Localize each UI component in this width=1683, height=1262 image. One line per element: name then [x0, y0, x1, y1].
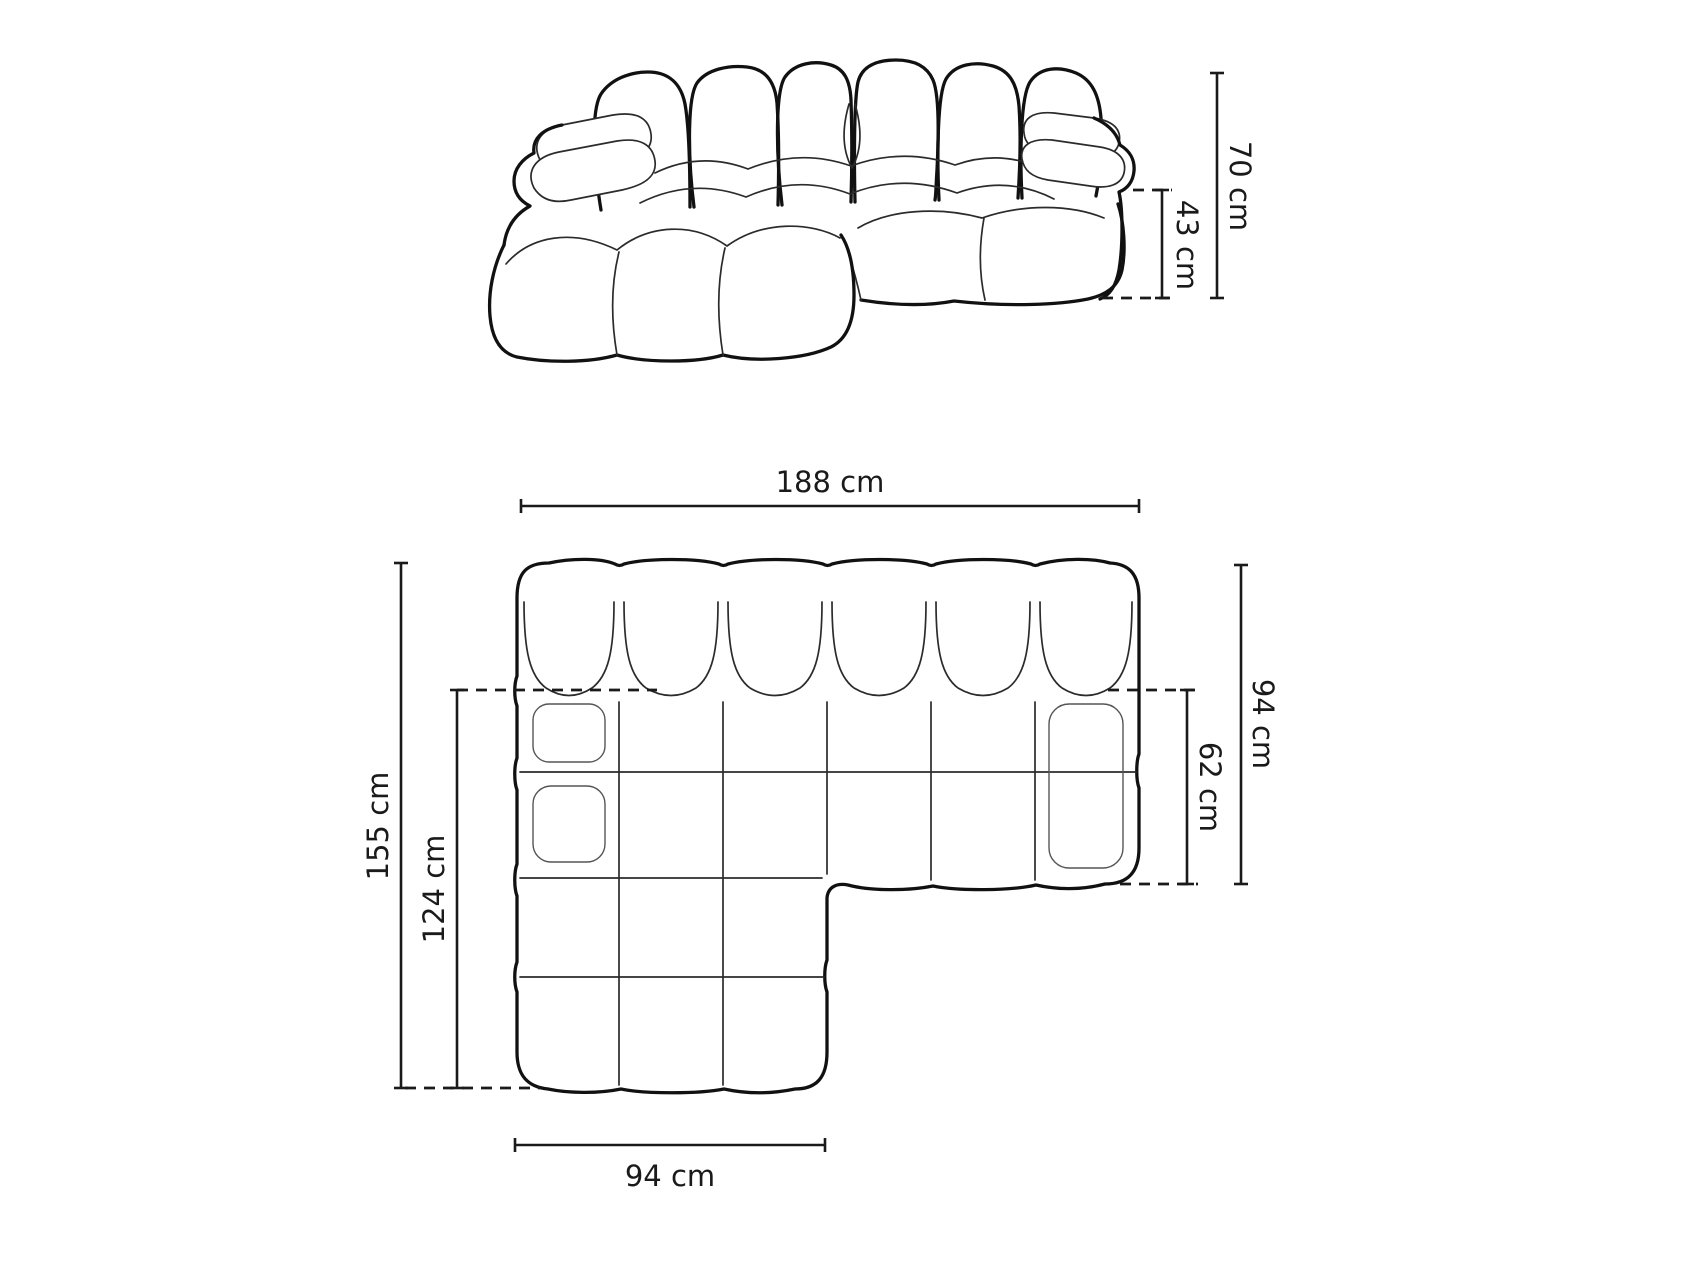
front-dim-label-total-height: 70 cm [1223, 141, 1257, 231]
plan-dim-label-chaise-seat-depth: 124 cm [417, 835, 451, 944]
diagram-svg: 70 cm 43 cm [0, 0, 1683, 1262]
plan-back-cushion-seams [524, 602, 1132, 696]
plan-dim-chaise-width: 94 cm [515, 1138, 825, 1193]
plan-dim-label-total-depth: 94 cm [1246, 679, 1280, 769]
plan-dim-label-seat-depth: 62 cm [1193, 742, 1227, 832]
front-chaise [490, 226, 854, 361]
sofa-dimension-diagram: 70 cm 43 cm [0, 0, 1683, 1262]
plan-dim-total-width: 188 cm [521, 465, 1139, 513]
front-dim-total-height: 70 cm [1210, 73, 1257, 298]
front-right-seat-section [844, 204, 1124, 305]
front-left-armrest [504, 114, 655, 245]
plan-dim-seat-depth: 62 cm [1108, 690, 1227, 884]
plan-dim-total-depth: 94 cm [1234, 565, 1280, 884]
front-dim-label-seat-height: 43 cm [1170, 200, 1204, 290]
plan-dim-label-total-width: 188 cm [776, 465, 885, 499]
front-perspective-view: 70 cm 43 cm [490, 60, 1257, 361]
plan-dim-chaise-length: 155 cm [361, 563, 408, 1088]
top-plan-view: 188 cm 94 cm 62 cm 155 cm [361, 465, 1280, 1193]
plan-dim-label-chaise-length: 155 cm [361, 772, 395, 881]
plan-dim-label-chaise-width: 94 cm [625, 1159, 715, 1193]
front-seat-tufting [640, 156, 1054, 203]
